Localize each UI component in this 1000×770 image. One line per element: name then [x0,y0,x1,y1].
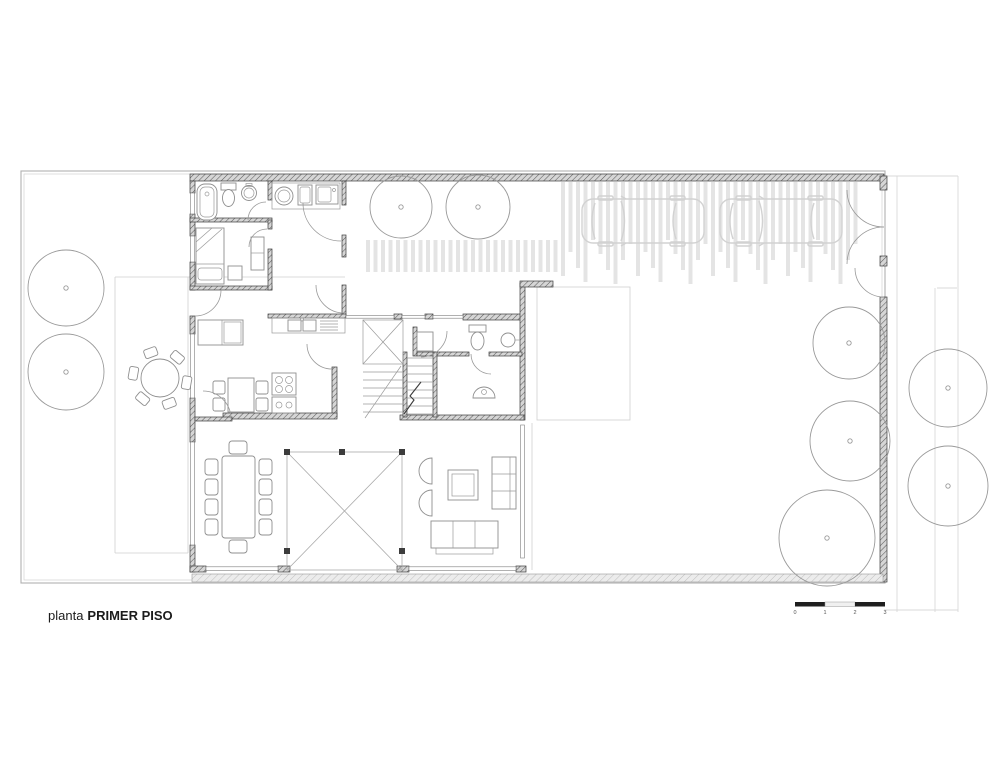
patio-table [141,359,179,397]
covered-deck [284,449,405,570]
tree-icon [813,307,885,379]
walkway-strip [192,574,883,582]
under-stair-closet [417,332,433,351]
tree-icon [370,176,432,238]
coffee-table [448,470,478,500]
bathroom [197,183,257,220]
entry-gates [847,190,884,297]
cooktop [272,373,296,395]
gate-post [880,176,887,190]
study-nook [473,387,495,398]
plan-title: plantaPRIMER PISO [48,608,173,623]
double-sink [288,318,338,331]
bed [196,228,224,284]
vehicle-gate-leaf [847,227,884,264]
toilet [221,183,236,207]
sofa [431,521,498,554]
bathroom-sink [242,184,257,201]
patio-chair [143,346,158,359]
plan-title-prefix: planta [48,608,84,623]
top-boundary-wall [190,174,884,181]
gate-post [880,256,887,266]
deck-posts [284,449,405,554]
scale-segment-dark [795,602,825,607]
scale-segment-dark [855,602,885,607]
night-table [228,266,242,280]
bedroom [196,228,264,284]
right-boundary-wall [880,297,887,582]
scale-tick: 0 [793,610,796,616]
washing-machine [275,187,293,205]
tree-icon [28,250,104,326]
laundry [272,183,340,209]
sofa [492,457,516,509]
scale-tick: 1 [823,610,826,616]
laundry-sink [316,185,338,204]
armchair [419,458,432,484]
sidewalk-lines [884,176,958,612]
living-room [419,457,516,554]
refrigerator-cabinet [198,320,243,345]
basin [473,387,495,398]
vehicle-gate-leaf [847,190,884,227]
floor-plan-drawing: plantaPRIMER PISO 0 1 2 3 [0,0,1000,770]
dryer [298,185,312,205]
oven [272,397,296,413]
pedestrian-gate [855,268,884,297]
patio-chair [162,397,177,410]
tree-icon [908,446,988,526]
powder-room [417,325,520,351]
tree-icon [446,175,510,239]
tree-icon [28,334,104,410]
scale-tick: 2 [853,610,856,616]
patio-chair [181,376,192,390]
dining-room [205,441,272,553]
scale-segment-light [825,602,855,607]
plan-title-name: PRIMER PISO [87,608,172,623]
toilet [469,325,486,350]
round-sink [501,333,520,347]
kitchen-table [228,378,254,412]
tree-icon [810,401,890,481]
scale-bar: 0 1 2 3 [793,602,886,616]
wardrobe [251,237,264,270]
patio-dining-set [128,346,192,410]
tree-icon [779,490,875,586]
scale-tick: 3 [883,610,886,616]
driveway-paving [368,182,856,284]
deck-cross-brace [287,452,402,570]
armchair [419,490,432,516]
dining-table [222,456,255,538]
patio-chair [128,366,139,380]
kitchen [198,318,345,413]
tree-icon [909,349,987,427]
